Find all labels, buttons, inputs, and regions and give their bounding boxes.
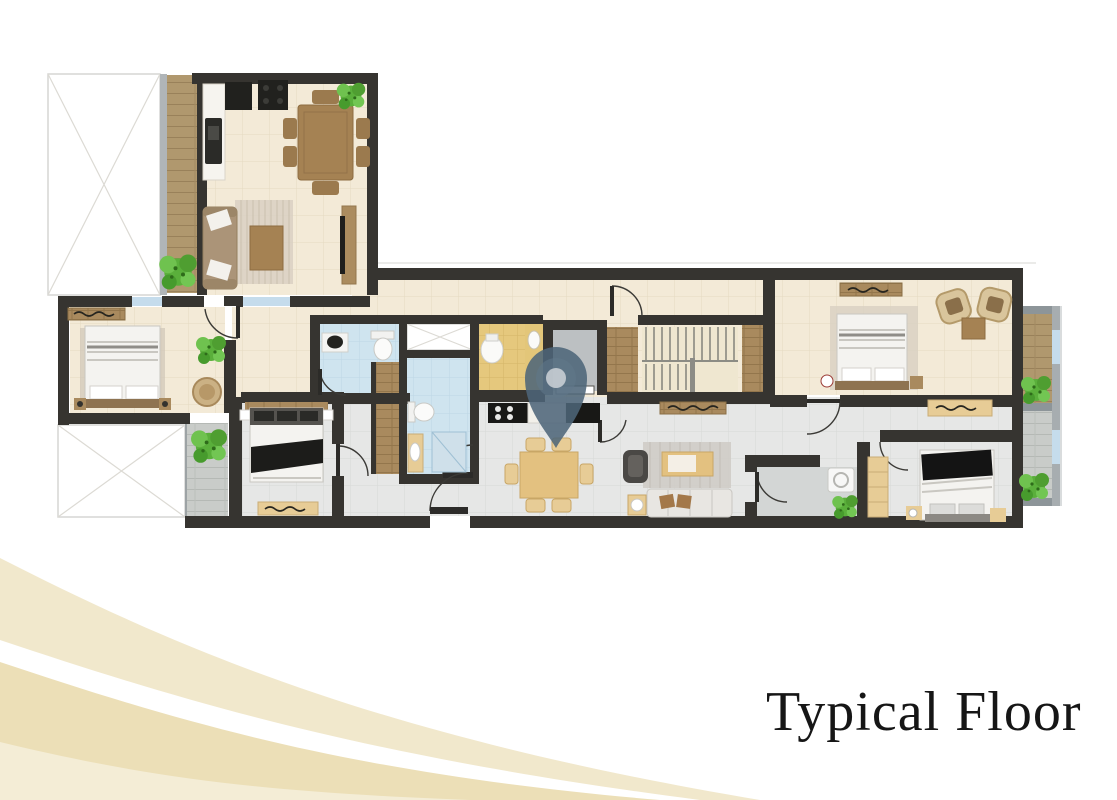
plant-icon xyxy=(1021,376,1051,404)
desk-console-lower-right xyxy=(928,400,992,416)
terrace-top-left xyxy=(48,74,167,295)
plant-icon xyxy=(1019,473,1049,501)
bed-2 xyxy=(240,408,333,482)
dresser-2 xyxy=(258,502,318,515)
stair-side-wood xyxy=(742,320,763,392)
staircase xyxy=(642,327,738,392)
coffee-table-1 xyxy=(250,226,283,270)
sofa-2 xyxy=(647,489,732,517)
decorative-waves xyxy=(0,558,760,800)
dresser-3 xyxy=(840,283,902,296)
bed-1 xyxy=(74,326,171,410)
terrace-bottom-left xyxy=(58,425,185,517)
coffee-table-2 xyxy=(662,452,713,476)
plant-icon xyxy=(337,83,366,110)
floor-caption: Typical Floor xyxy=(766,680,1096,744)
tv-console xyxy=(340,206,356,284)
washing-machine xyxy=(828,468,854,492)
roof-outline xyxy=(360,262,1036,264)
plant-icon xyxy=(832,495,858,519)
sofa-1 xyxy=(203,207,237,289)
armchair-2 xyxy=(623,450,648,483)
stair-lobby xyxy=(607,327,638,392)
hall-console xyxy=(660,402,726,414)
armchair-bedroom-1 xyxy=(193,378,221,406)
plant-icon xyxy=(159,255,197,290)
plant-icon xyxy=(196,336,226,364)
light-well xyxy=(407,324,473,350)
plant-icon xyxy=(191,429,227,463)
side-table-2 xyxy=(628,495,646,515)
closet-strip xyxy=(375,362,399,474)
wardrobe-4 xyxy=(868,457,888,517)
bed-3 xyxy=(821,306,923,390)
dresser-1 xyxy=(68,308,125,320)
balcony-outer-line xyxy=(1060,306,1062,506)
bed-4 xyxy=(906,450,1006,522)
kitchen-counter xyxy=(203,84,225,180)
wc-counter-sink xyxy=(528,331,540,349)
page: Typical Floor xyxy=(0,0,1117,800)
